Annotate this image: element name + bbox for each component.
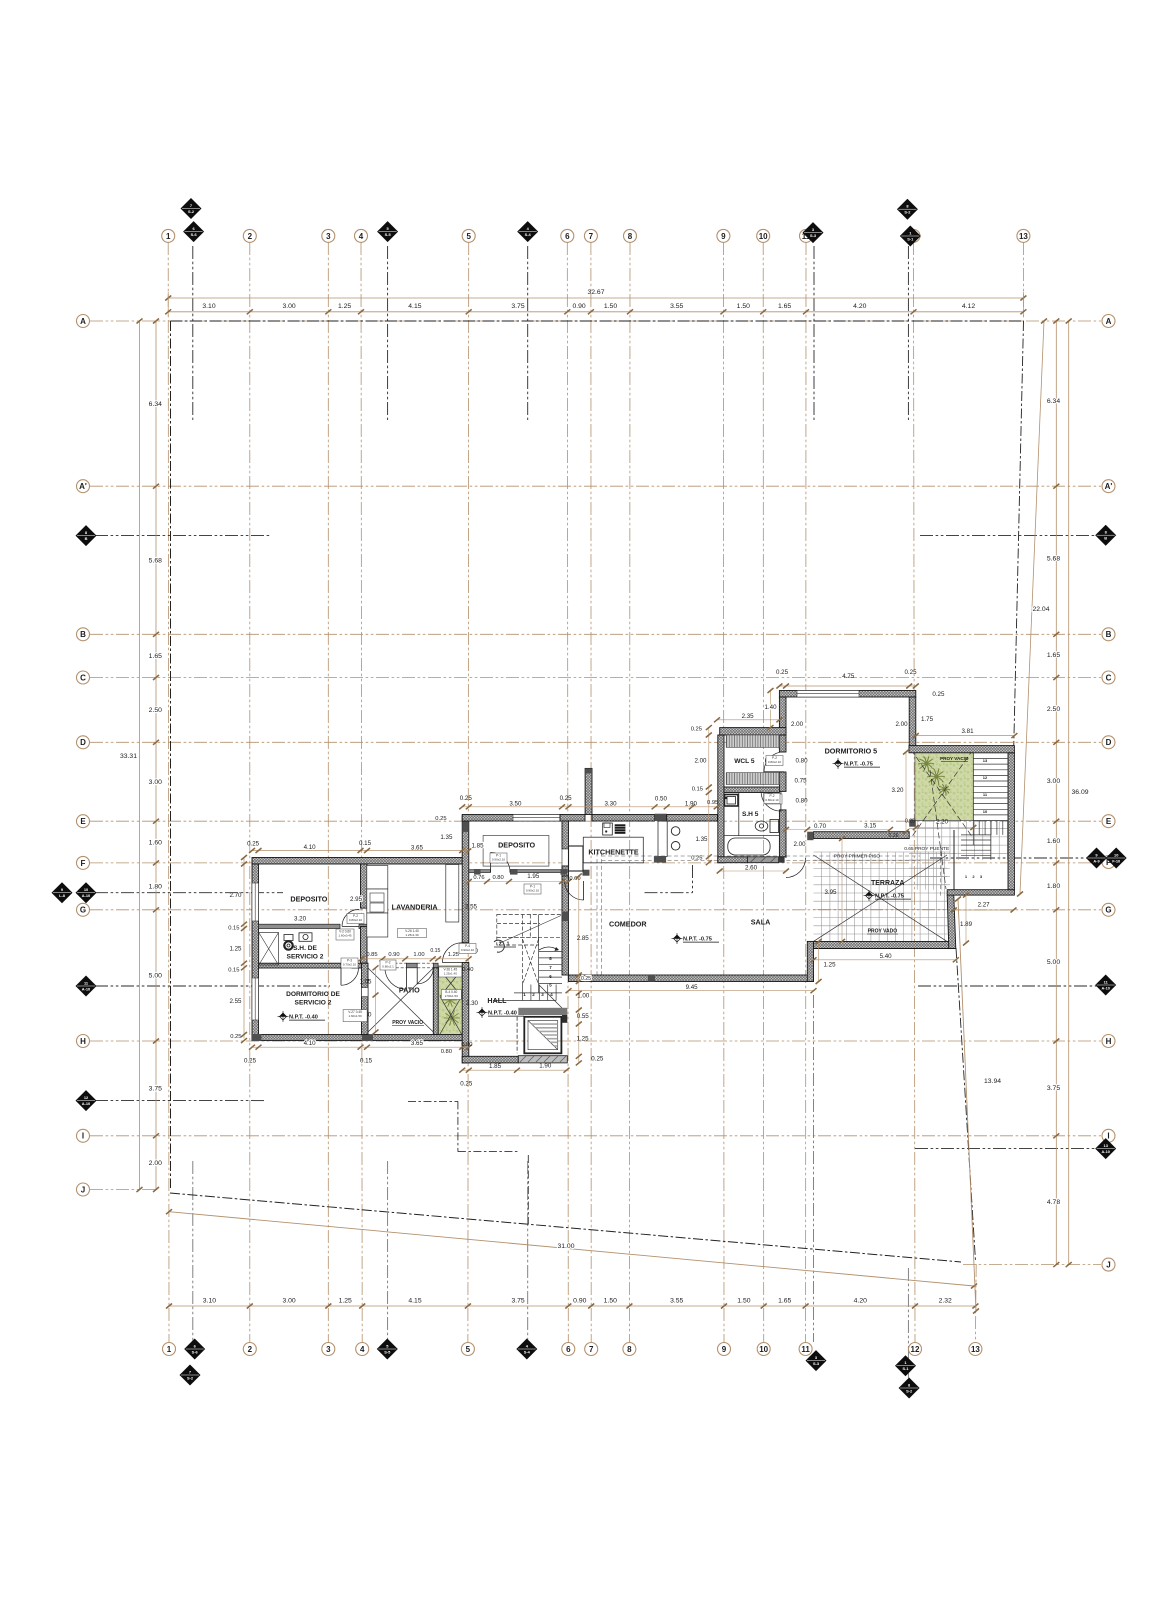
svg-text:HALL: HALL	[487, 996, 507, 1005]
svg-text:B: B	[85, 536, 88, 541]
svg-text:0.50: 0.50	[655, 796, 668, 803]
svg-text:0.90x2.10: 0.90x2.10	[461, 948, 475, 952]
svg-text:0.70: 0.70	[814, 823, 827, 830]
svg-text:3: 3	[326, 1345, 331, 1354]
svg-text:DEPOSITO: DEPOSITO	[290, 895, 327, 904]
svg-text:6.34: 6.34	[149, 401, 162, 408]
svg-text:A-9: A-9	[1093, 858, 1100, 863]
svg-text:6: 6	[566, 1345, 571, 1354]
svg-text:F: F	[81, 859, 86, 868]
svg-text:2.00: 2.00	[694, 758, 707, 765]
svg-text:0.15: 0.15	[228, 926, 239, 932]
svg-text:1.25: 1.25	[824, 962, 837, 969]
svg-text:0.70x2.10: 0.70x2.10	[343, 962, 357, 966]
svg-text:2.30: 2.30	[466, 1000, 479, 1007]
svg-text:1.95: 1.95	[527, 873, 540, 880]
svg-text:S-4: S-4	[524, 1349, 531, 1354]
svg-text:9: 9	[721, 232, 726, 241]
svg-text:DORMITORIO DE: DORMITORIO DE	[286, 991, 340, 998]
svg-text:11: 11	[801, 1345, 810, 1354]
svg-text:0.80x2.10: 0.80x2.10	[768, 760, 782, 764]
svg-text:0.25: 0.25	[435, 816, 446, 822]
svg-text:2: 2	[248, 232, 253, 241]
svg-text:1.25: 1.25	[577, 1036, 590, 1043]
svg-text:22.04: 22.04	[1032, 606, 1049, 613]
svg-text:S-2: S-2	[187, 1375, 194, 1380]
svg-text:0.26: 0.26	[888, 833, 898, 839]
svg-text:3.50: 3.50	[509, 801, 522, 808]
svg-text:9: 9	[722, 1345, 727, 1354]
svg-text:0.25: 0.25	[460, 1081, 473, 1088]
svg-text:1.50: 1.50	[737, 1297, 750, 1304]
svg-text:S.H. DE: S.H. DE	[293, 945, 317, 952]
svg-text:4.12: 4.12	[962, 303, 975, 310]
svg-text:0.25: 0.25	[776, 669, 789, 676]
svg-text:A-10: A-10	[1101, 1149, 1109, 1154]
svg-text:N.P.T. -0.40: N.P.T. -0.40	[289, 1015, 318, 1021]
svg-text:0.25: 0.25	[691, 856, 702, 862]
svg-text:1.65: 1.65	[1047, 652, 1060, 659]
svg-text:13.94: 13.94	[984, 1078, 1001, 1085]
svg-text:1.60: 1.60	[1047, 838, 1060, 845]
svg-text:4: 4	[360, 1345, 365, 1354]
svg-text:I: I	[1107, 1132, 1109, 1141]
svg-text:A': A'	[79, 482, 87, 491]
svg-text:2.50: 2.50	[149, 707, 162, 714]
svg-text:S-1: S-1	[907, 236, 914, 241]
svg-text:1.40: 1.40	[764, 704, 777, 711]
svg-text:5.00: 5.00	[149, 973, 162, 980]
svg-text:1.85: 1.85	[471, 843, 484, 850]
svg-text:TERRAZA: TERRAZA	[871, 880, 904, 887]
svg-text:0.25: 0.25	[244, 1058, 257, 1065]
svg-text:6.34: 6.34	[1047, 398, 1060, 405]
svg-text:0.40: 0.40	[462, 967, 473, 973]
svg-text:A-10: A-10	[82, 893, 90, 898]
svg-text:J: J	[81, 1185, 85, 1194]
svg-text:3.10: 3.10	[203, 1297, 216, 1304]
svg-text:0.25: 0.25	[460, 795, 473, 802]
svg-text:0.90: 0.90	[572, 303, 585, 310]
svg-text:8: 8	[628, 232, 633, 241]
svg-text:S-6: S-6	[192, 1349, 199, 1354]
svg-text:5.00: 5.00	[1047, 959, 1060, 966]
svg-text:2.00: 2.00	[794, 841, 807, 848]
svg-text:0.15: 0.15	[430, 948, 440, 954]
svg-text:1.25: 1.25	[229, 946, 242, 953]
svg-text:1: 1	[166, 232, 171, 241]
svg-text:S-2: S-2	[906, 1388, 913, 1393]
svg-text:3.75: 3.75	[511, 303, 524, 310]
svg-text:5.40: 5.40	[880, 953, 893, 960]
svg-text:13: 13	[983, 758, 988, 763]
svg-text:1.89: 1.89	[960, 921, 973, 928]
svg-text:10: 10	[759, 232, 768, 241]
svg-text:2.85: 2.85	[577, 935, 590, 942]
svg-text:31.00: 31.00	[557, 1243, 574, 1250]
svg-text:12: 12	[911, 1345, 920, 1354]
svg-text:10: 10	[759, 1345, 768, 1354]
svg-text:2.95: 2.95	[350, 896, 363, 903]
svg-text:D: D	[80, 738, 86, 747]
svg-text:DEPOSITO: DEPOSITO	[498, 841, 535, 850]
svg-text:12: 12	[983, 775, 988, 780]
svg-text:1.90: 1.90	[685, 801, 698, 808]
svg-text:A-10: A-10	[82, 1101, 90, 1106]
svg-text:10: 10	[84, 887, 88, 892]
svg-text:B: B	[80, 630, 86, 639]
svg-text:C: C	[1106, 673, 1112, 682]
svg-text:2.00: 2.00	[791, 721, 804, 728]
svg-text:4.15: 4.15	[408, 303, 421, 310]
svg-text:7: 7	[190, 203, 192, 208]
svg-text:S-2: S-2	[904, 210, 911, 215]
svg-text:2.60: 2.60	[745, 865, 758, 872]
svg-text:0.25: 0.25	[247, 840, 260, 847]
svg-text:S-4: S-4	[525, 232, 532, 237]
svg-text:0.25: 0.25	[591, 1055, 604, 1062]
svg-text:1.90: 1.90	[539, 1062, 552, 1069]
svg-text:3.00: 3.00	[1047, 778, 1060, 785]
svg-text:1.50: 1.50	[604, 303, 617, 310]
svg-text:S-3: S-3	[813, 1361, 820, 1366]
svg-text:0.15: 0.15	[228, 968, 239, 974]
svg-text:S.H 5: S.H 5	[742, 811, 759, 818]
svg-text:1: 1	[167, 1345, 172, 1354]
svg-text:G: G	[80, 906, 86, 915]
svg-text:N.P.T. -0.75: N.P.T. -0.75	[875, 894, 904, 900]
svg-text:10: 10	[983, 809, 988, 814]
svg-text:0.25: 0.25	[905, 818, 915, 824]
svg-text:G: G	[1105, 906, 1111, 915]
svg-text:2.55: 2.55	[229, 998, 242, 1005]
svg-text:SERVICIO 2: SERVICIO 2	[287, 954, 324, 961]
svg-text:0.80x2.1: 0.80x2.1	[382, 964, 394, 968]
svg-text:3.00: 3.00	[282, 303, 295, 310]
svg-text:3.20: 3.20	[891, 787, 904, 794]
svg-text:1.25: 1.25	[338, 303, 351, 310]
svg-text:2.55: 2.55	[465, 904, 478, 911]
svg-text:1.65: 1.65	[149, 653, 162, 660]
svg-text:4.10: 4.10	[304, 1040, 317, 1047]
svg-text:4.20: 4.20	[853, 303, 866, 310]
svg-text:1.65: 1.65	[778, 303, 791, 310]
svg-text:KITCHENETTE: KITCHENETTE	[588, 848, 639, 857]
svg-text:L-8: L-8	[59, 893, 66, 898]
svg-text:D: D	[1106, 738, 1112, 747]
svg-text:J: J	[1106, 1261, 1110, 1270]
svg-text:S-5: S-5	[385, 232, 392, 237]
svg-text:N.P.T. -0.40: N.P.T. -0.40	[488, 1011, 517, 1017]
svg-text:0.25: 0.25	[691, 727, 702, 733]
svg-text:3.95: 3.95	[824, 889, 837, 896]
svg-text:I: I	[82, 1132, 84, 1141]
svg-text:S-3: S-3	[810, 233, 817, 238]
svg-text:5: 5	[466, 1345, 471, 1354]
svg-text:0.76: 0.76	[473, 875, 484, 881]
svg-text:7: 7	[189, 1369, 191, 1374]
svg-text:2.27: 2.27	[978, 902, 991, 909]
svg-text:0.25: 0.25	[230, 1034, 241, 1040]
svg-text:0.25: 0.25	[904, 669, 917, 676]
svg-text:1.60x0.45: 1.60x0.45	[338, 933, 352, 937]
svg-text:A: A	[80, 317, 86, 326]
svg-text:WCL 5: WCL 5	[734, 758, 755, 765]
svg-text:S-6: S-6	[191, 232, 198, 237]
svg-text:0.80: 0.80	[796, 798, 809, 805]
svg-text:1.00: 1.00	[577, 993, 590, 1000]
svg-text:4: 4	[359, 232, 364, 241]
svg-text:0.80: 0.80	[461, 1042, 472, 1048]
svg-text:0.90: 0.90	[573, 1297, 586, 1304]
svg-text:B: B	[1104, 536, 1107, 541]
svg-text:E: E	[80, 817, 86, 826]
svg-text:PROY VADO: PROY VADO	[868, 929, 898, 935]
svg-text:1.60: 1.60	[149, 839, 162, 846]
svg-text:4.15: 4.15	[408, 1297, 421, 1304]
svg-text:3.75: 3.75	[1047, 1085, 1060, 1092]
svg-text:2.32: 2.32	[939, 1297, 952, 1304]
svg-text:1.80: 1.80	[149, 884, 162, 891]
svg-text:N.P.T. -0.75: N.P.T. -0.75	[683, 937, 712, 943]
svg-text:10: 10	[1114, 852, 1118, 857]
svg-text:COMEDOR: COMEDOR	[609, 920, 647, 929]
svg-text:2.20: 2.20	[936, 819, 949, 826]
svg-text:A-10: A-10	[82, 986, 90, 991]
svg-text:1.35: 1.35	[695, 836, 708, 843]
svg-text:0.80: 0.80	[441, 1049, 452, 1055]
svg-text:1.05: 1.05	[359, 979, 372, 986]
svg-text:6: 6	[565, 232, 570, 241]
svg-text:2.50x1.50: 2.50x1.50	[445, 994, 459, 998]
svg-text:1.00: 1.00	[413, 952, 424, 958]
svg-text:5.68: 5.68	[149, 558, 162, 565]
svg-text:1.80: 1.80	[1047, 883, 1060, 890]
svg-text:1.25: 1.25	[448, 952, 459, 958]
svg-text:SALA: SALA	[751, 918, 771, 927]
svg-text:DORMITORIO 5: DORMITORIO 5	[825, 747, 878, 756]
svg-text:3.75: 3.75	[149, 1086, 162, 1093]
svg-text:3.81: 3.81	[961, 728, 974, 735]
svg-text:4.20: 4.20	[854, 1297, 867, 1304]
svg-text:1.25x1.40: 1.25x1.40	[444, 971, 458, 975]
svg-text:36.09: 36.09	[1072, 789, 1089, 796]
svg-text:F-10: F-10	[1112, 858, 1120, 863]
svg-text:0.80: 0.80	[796, 758, 809, 765]
svg-text:PROY VACIO: PROY VACIO	[392, 1020, 423, 1026]
svg-text:7: 7	[589, 232, 594, 241]
svg-text:1.25: 1.25	[339, 1297, 352, 1304]
svg-text:PROY PRIMER PISO: PROY PRIMER PISO	[834, 854, 881, 860]
svg-text:33.31: 33.31	[120, 753, 137, 760]
svg-text:1.50: 1.50	[737, 303, 750, 310]
svg-text:S-2: S-2	[188, 209, 195, 214]
svg-text:0.75: 0.75	[795, 778, 808, 785]
svg-text:B: B	[1106, 630, 1112, 639]
svg-text:0.80: 0.80	[492, 875, 503, 881]
svg-text:0.85: 0.85	[366, 952, 377, 958]
svg-text:5.68: 5.68	[1047, 556, 1060, 563]
svg-text:3.65: 3.65	[411, 1040, 424, 1047]
svg-text:0.25: 0.25	[581, 976, 591, 982]
svg-text:2: 2	[248, 1345, 253, 1354]
svg-text:3.65: 3.65	[411, 844, 424, 851]
svg-text:3.20: 3.20	[294, 916, 307, 923]
svg-text:7: 7	[589, 1345, 594, 1354]
svg-text:0.15: 0.15	[360, 1058, 373, 1065]
svg-text:1.50: 1.50	[604, 1297, 617, 1304]
svg-text:1.65: 1.65	[778, 1297, 791, 1304]
svg-text:3.30: 3.30	[604, 801, 617, 808]
svg-text:2.00: 2.00	[149, 1160, 162, 1167]
svg-text:2.00: 2.00	[895, 721, 908, 728]
svg-text:2.50: 2.50	[1047, 706, 1060, 713]
svg-text:13: 13	[971, 1345, 980, 1354]
svg-text:3: 3	[326, 232, 331, 241]
svg-text:3.00: 3.00	[149, 779, 162, 786]
svg-text:1.85: 1.85	[489, 1063, 502, 1070]
svg-text:A-10: A-10	[1101, 985, 1109, 990]
svg-text:PATIO: PATIO	[399, 986, 420, 995]
svg-text:5: 5	[466, 232, 471, 241]
svg-text:0.15: 0.15	[359, 840, 372, 847]
svg-text:2.70: 2.70	[229, 892, 242, 899]
svg-text:S-5: S-5	[384, 1349, 391, 1354]
svg-text:0.55: 0.55	[577, 1013, 590, 1020]
svg-text:PROY VACIO: PROY VACIO	[940, 756, 969, 761]
svg-text:2.35: 2.35	[742, 713, 755, 720]
svg-text:8: 8	[627, 1345, 632, 1354]
svg-text:13: 13	[1019, 232, 1028, 241]
svg-text:1.25x1.30: 1.25x1.30	[405, 933, 419, 937]
svg-text:H: H	[80, 1037, 86, 1046]
svg-text:H: H	[1106, 1037, 1112, 1046]
svg-text:4.78: 4.78	[1047, 1199, 1060, 1206]
svg-text:0.80x2.10: 0.80x2.10	[349, 918, 363, 922]
svg-text:0.80x2.10: 0.80x2.10	[765, 798, 779, 802]
svg-text:N.P.T. -0.75: N.P.T. -0.75	[844, 762, 873, 768]
svg-text:1.60x1.50: 1.60x1.50	[349, 1014, 363, 1018]
svg-text:0.90: 0.90	[388, 952, 399, 958]
svg-text:9.45: 9.45	[686, 984, 699, 991]
svg-text:1.35: 1.35	[440, 834, 453, 841]
svg-text:0.65 PROY PUENTE: 0.65 PROY PUENTE	[904, 846, 949, 852]
svg-text:3.00: 3.00	[282, 1297, 295, 1304]
svg-text:E: E	[1106, 817, 1112, 826]
svg-text:0.95: 0.95	[707, 800, 718, 806]
svg-text:1.75: 1.75	[921, 716, 934, 723]
svg-text:3.15: 3.15	[864, 823, 877, 830]
svg-text:A': A'	[1105, 482, 1113, 491]
svg-text:A: A	[1106, 317, 1112, 326]
svg-text:C: C	[80, 673, 86, 682]
svg-text:0.15: 0.15	[692, 787, 703, 793]
svg-text:0.25: 0.25	[560, 795, 573, 802]
svg-text:3.10: 3.10	[202, 303, 215, 310]
svg-text:32.67: 32.67	[587, 289, 604, 296]
svg-text:S-1: S-1	[902, 1366, 909, 1371]
svg-text:SERVICIO 2: SERVICIO 2	[295, 1000, 332, 1007]
svg-text:3.55: 3.55	[670, 303, 683, 310]
svg-text:0.90x2.10: 0.90x2.10	[526, 888, 540, 892]
svg-text:3.75: 3.75	[511, 1297, 524, 1304]
svg-text:0.90x2.10: 0.90x2.10	[492, 857, 506, 861]
svg-text:4.10: 4.10	[304, 844, 317, 851]
svg-text:4.75: 4.75	[842, 673, 855, 680]
svg-text:0.25: 0.25	[932, 691, 945, 698]
svg-text:LAVANDERIA: LAVANDERIA	[392, 903, 438, 912]
svg-text:3.55: 3.55	[670, 1297, 683, 1304]
